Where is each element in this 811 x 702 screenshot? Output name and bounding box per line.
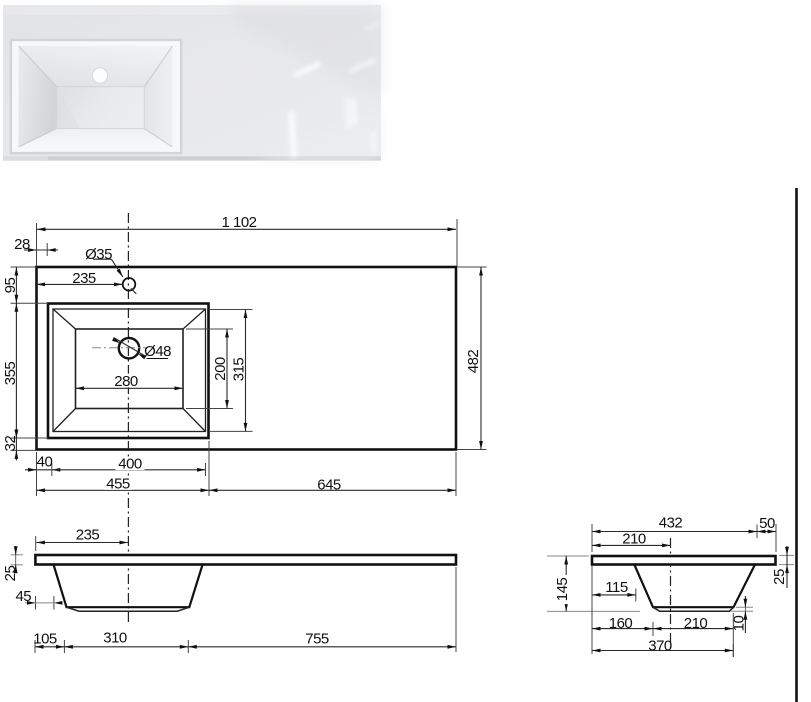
svg-text:50: 50 — [759, 515, 775, 532]
svg-text:482: 482 — [465, 350, 482, 374]
svg-text:355: 355 — [2, 362, 19, 386]
svg-text:235: 235 — [72, 270, 96, 287]
svg-text:455: 455 — [106, 475, 130, 492]
svg-text:32: 32 — [2, 436, 19, 452]
svg-text:200: 200 — [212, 357, 229, 381]
svg-text:Ø48: Ø48 — [144, 343, 171, 360]
svg-text:45: 45 — [15, 588, 31, 605]
svg-text:432: 432 — [659, 514, 683, 531]
svg-text:160: 160 — [609, 615, 633, 632]
svg-text:105: 105 — [33, 630, 57, 647]
svg-text:145: 145 — [554, 578, 571, 602]
svg-text:235: 235 — [76, 526, 100, 543]
svg-text:280: 280 — [114, 373, 138, 390]
svg-text:40: 40 — [37, 454, 53, 471]
svg-text:Ø35: Ø35 — [85, 246, 112, 263]
svg-text:370: 370 — [648, 637, 672, 654]
svg-text:400: 400 — [118, 456, 142, 473]
svg-text:115: 115 — [605, 579, 628, 596]
svg-text:210: 210 — [684, 615, 708, 632]
svg-text:645: 645 — [317, 476, 341, 493]
svg-text:25: 25 — [2, 566, 19, 582]
svg-text:755: 755 — [305, 630, 329, 647]
svg-text:1 102: 1 102 — [221, 214, 256, 231]
svg-text:315: 315 — [230, 358, 247, 382]
svg-text:210: 210 — [622, 530, 646, 547]
svg-text:95: 95 — [2, 278, 19, 294]
svg-text:28: 28 — [14, 236, 30, 253]
svg-text:310: 310 — [103, 629, 127, 646]
svg-text:25: 25 — [771, 569, 788, 585]
